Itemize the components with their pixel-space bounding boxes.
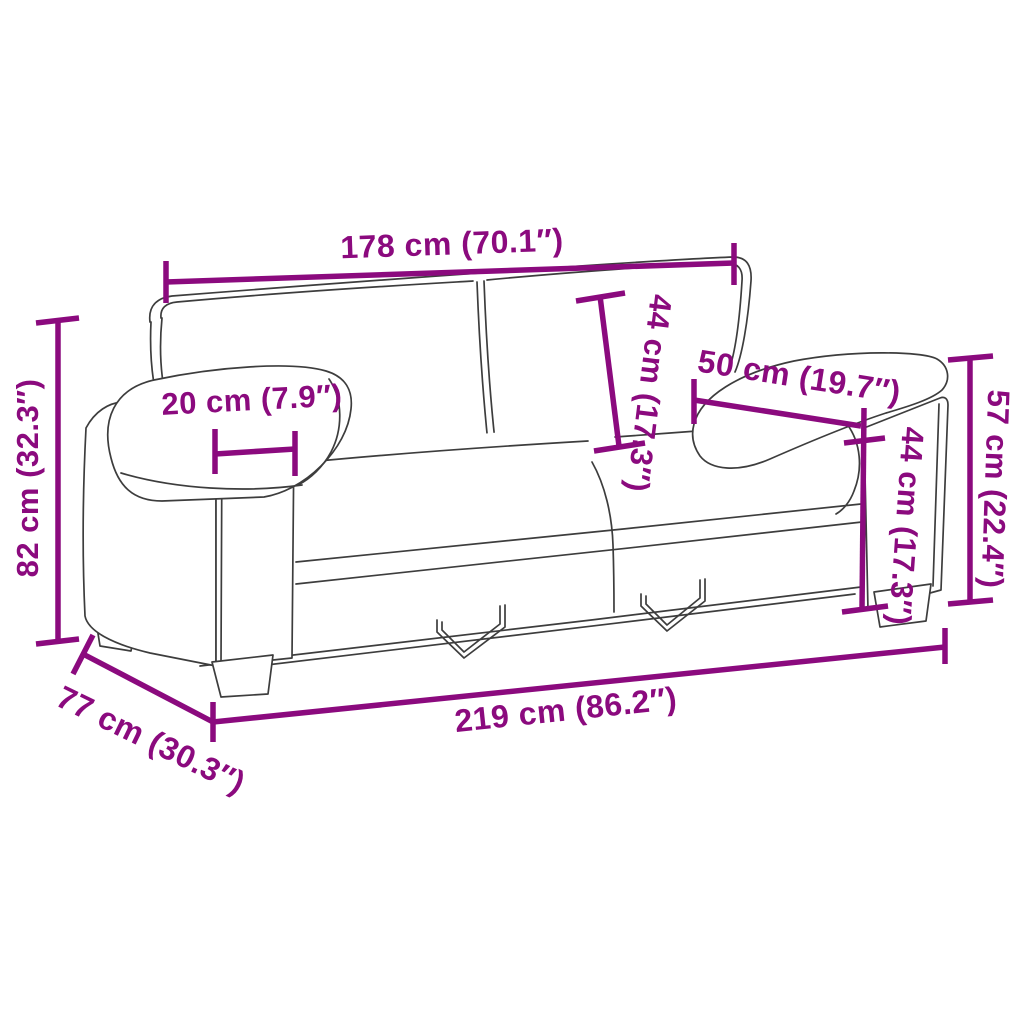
dim-label-overall-width-top: 178 cm (70.1″)	[340, 222, 564, 266]
dim-label-arm-height-right: 57 cm (22.4″)	[974, 389, 1016, 589]
sofa-dimension-diagram: 178 cm (70.1″) 44 cm (17.3″) 50 cm (19.7…	[0, 0, 1024, 1024]
dim-label-overall-height: 82 cm (32.3″)	[10, 379, 45, 578]
dimension-diagram-canvas: 178 cm (70.1″) 44 cm (17.3″) 50 cm (19.7…	[0, 0, 1024, 1024]
dim-label-overall-width-bottom: 219 cm (86.2″)	[453, 680, 679, 739]
sofa-line-drawing	[83, 257, 948, 697]
sofa-leg-front-left	[212, 655, 273, 697]
dim-overall-height: 82 cm (32.3″)	[10, 318, 79, 644]
dim-arm-height-right: 57 cm (22.4″)	[948, 356, 1016, 604]
